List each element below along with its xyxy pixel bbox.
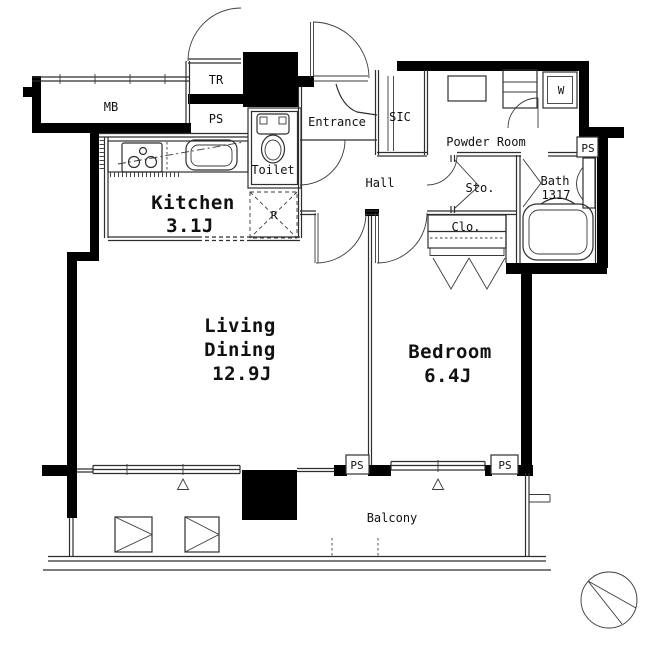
bath-counter-icon bbox=[577, 158, 596, 208]
balcony-access-marker bbox=[178, 479, 189, 490]
bath-folding-door bbox=[523, 159, 541, 207]
balcony-access-marker bbox=[433, 479, 444, 490]
hall-label: Hall bbox=[366, 176, 395, 190]
closet-bifold-doors bbox=[433, 258, 505, 289]
refrigerator-label: R bbox=[271, 209, 278, 222]
living-size-label: 12.9J bbox=[212, 363, 272, 385]
bath-size-label: 1317 bbox=[542, 188, 571, 202]
kitchen-size-label: 3.1J bbox=[166, 215, 214, 237]
powder-room-door-arc bbox=[427, 155, 457, 185]
bedroom-label: Bedroom bbox=[408, 341, 492, 363]
living-label-2: Dining bbox=[204, 339, 276, 361]
vanity-icon bbox=[448, 76, 486, 101]
entrance-label: Entrance bbox=[308, 115, 366, 129]
trunk-room-label: TR bbox=[209, 73, 224, 87]
toilet-door-arc bbox=[300, 140, 345, 185]
pipe-space-label: PS bbox=[209, 112, 223, 126]
storage-label: Sto. bbox=[466, 181, 495, 195]
living-window bbox=[93, 464, 240, 475]
pipe-space-label: PS bbox=[350, 459, 363, 472]
entrance-door bbox=[311, 22, 370, 81]
floorplan: MB TR PS Toilet Entrance SIC Powder Room… bbox=[0, 0, 666, 651]
balcony-label: Balcony bbox=[367, 511, 418, 525]
bedroom-window bbox=[391, 460, 485, 472]
ac-unit-icon bbox=[115, 517, 152, 552]
cabinet-icon bbox=[503, 70, 537, 108]
floorplan-drawing: MB TR PS Toilet Entrance SIC Powder Room… bbox=[0, 0, 666, 651]
kitchen-fixtures bbox=[102, 140, 248, 175]
toilet-label: Toilet bbox=[251, 163, 294, 177]
living-door bbox=[315, 213, 366, 263]
trunk-room-door-arc bbox=[188, 8, 241, 61]
pillar bbox=[243, 52, 298, 107]
kitchen-label: Kitchen bbox=[151, 192, 235, 214]
sic-label: SIC bbox=[389, 110, 411, 124]
toilet-icon bbox=[257, 114, 289, 163]
closet-label: Clo. bbox=[452, 220, 481, 234]
washer-label: W bbox=[558, 84, 565, 97]
powder-cabinet-door bbox=[508, 98, 538, 128]
pipe-space-label: PS bbox=[581, 142, 594, 155]
meter-box-label: MB bbox=[104, 100, 118, 114]
powder-room-label: Powder Room bbox=[446, 135, 525, 149]
ac-unit-icon bbox=[185, 517, 219, 552]
bath-label: Bath bbox=[541, 174, 570, 188]
pillar bbox=[242, 470, 297, 520]
bedroom-door bbox=[376, 213, 428, 263]
living-label-1: Living bbox=[204, 315, 276, 337]
north-indicator bbox=[581, 572, 637, 628]
pipe-space-label: PS bbox=[498, 459, 511, 472]
bedroom-size-label: 6.4J bbox=[424, 365, 472, 387]
